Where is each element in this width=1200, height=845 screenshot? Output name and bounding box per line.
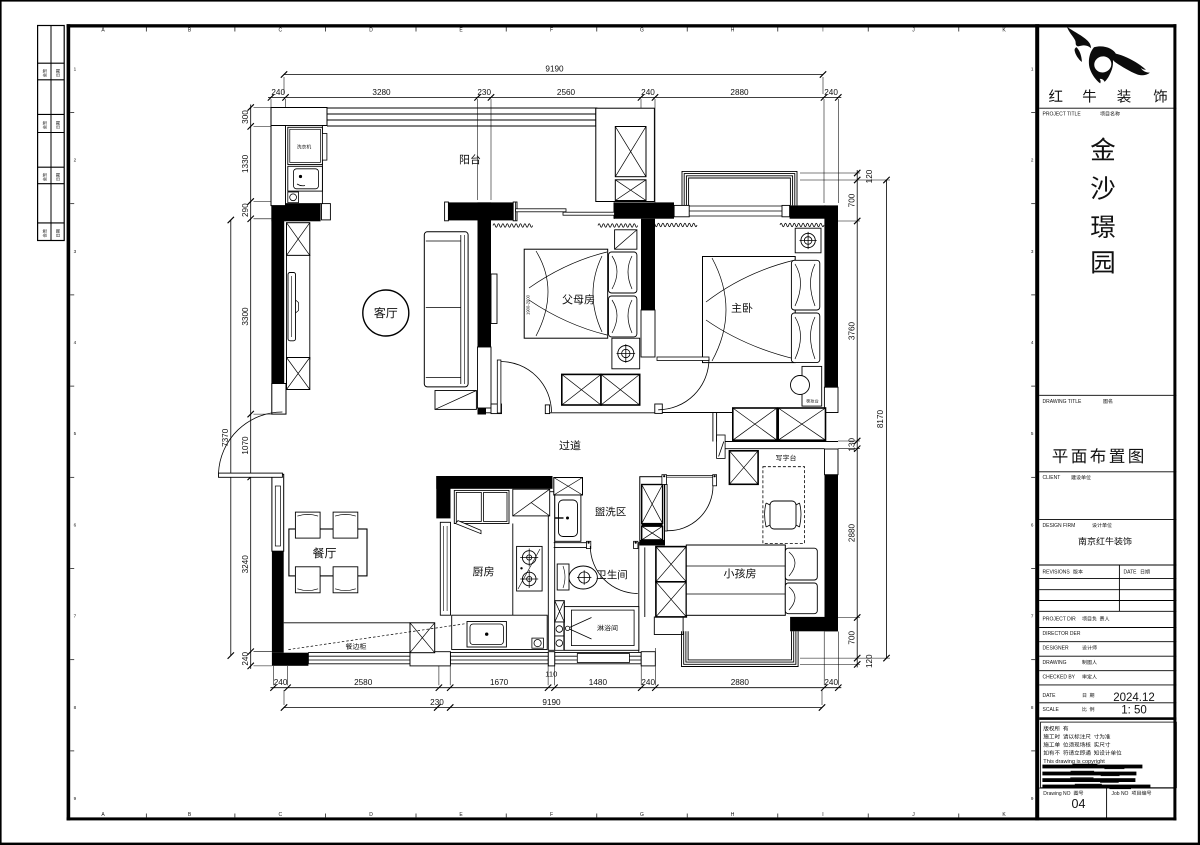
svg-text:SCALE: SCALE xyxy=(1043,707,1060,713)
svg-text:F: F xyxy=(550,812,553,818)
svg-text:3300: 3300 xyxy=(241,307,250,326)
svg-text:3: 3 xyxy=(1031,249,1034,254)
svg-text:240: 240 xyxy=(824,88,838,97)
svg-text:1900-2000: 1900-2000 xyxy=(526,294,531,315)
svg-text:110: 110 xyxy=(545,670,557,679)
svg-text:2880: 2880 xyxy=(730,88,749,97)
svg-text:DATE: DATE xyxy=(1124,570,1138,576)
svg-text:Drawing NO: Drawing NO xyxy=(1043,791,1070,797)
svg-text:DESIGNER: DESIGNER xyxy=(1043,646,1070,652)
svg-text:1480: 1480 xyxy=(589,678,608,687)
svg-text:7: 7 xyxy=(1031,614,1034,619)
svg-text:9: 9 xyxy=(1031,796,1034,801)
svg-text:DATE: DATE xyxy=(1043,693,1057,699)
svg-text:2560: 2560 xyxy=(557,88,576,97)
svg-text:6: 6 xyxy=(1031,522,1034,527)
svg-text:120: 120 xyxy=(865,169,874,183)
svg-text:120: 120 xyxy=(865,654,874,668)
svg-text:Job NO: Job NO xyxy=(1112,791,1129,797)
svg-text:700: 700 xyxy=(847,193,856,207)
svg-text:04: 04 xyxy=(1072,797,1086,811)
svg-text:240: 240 xyxy=(274,678,288,687)
svg-text:3240: 3240 xyxy=(241,555,250,574)
svg-text:2024.12: 2024.12 xyxy=(1113,692,1155,704)
svg-text:9190: 9190 xyxy=(542,698,561,707)
svg-text:G: G xyxy=(640,27,644,33)
svg-text:CLIENT: CLIENT xyxy=(1043,475,1061,481)
svg-text:C: C xyxy=(278,812,282,818)
svg-text:230: 230 xyxy=(430,698,444,707)
svg-text:1070: 1070 xyxy=(241,436,250,455)
svg-text:G: G xyxy=(640,812,644,818)
svg-text:PROJECT TITLE: PROJECT TITLE xyxy=(1043,112,1082,118)
svg-text:240: 240 xyxy=(241,652,250,666)
svg-text:9: 9 xyxy=(74,796,77,801)
svg-text:2: 2 xyxy=(74,158,77,163)
svg-text:2880: 2880 xyxy=(731,678,750,687)
svg-text:8170: 8170 xyxy=(876,409,885,428)
svg-text:5: 5 xyxy=(74,431,77,436)
svg-text:1: 50: 1: 50 xyxy=(1121,705,1147,717)
svg-text:DRAWING: DRAWING xyxy=(1043,660,1067,666)
svg-text:REVISIONS: REVISIONS xyxy=(1043,570,1071,576)
svg-text:4: 4 xyxy=(74,340,77,345)
svg-text:1: 1 xyxy=(1031,66,1034,71)
svg-text:I: I xyxy=(822,27,823,33)
svg-text:DRAWING TITLE: DRAWING TITLE xyxy=(1043,399,1083,405)
svg-text:240: 240 xyxy=(824,678,838,687)
svg-text:700: 700 xyxy=(847,631,856,645)
svg-text:6: 6 xyxy=(74,522,77,527)
svg-text:3280: 3280 xyxy=(372,88,391,97)
svg-text:300: 300 xyxy=(241,110,250,124)
svg-text:F: F xyxy=(550,27,553,33)
svg-text:7370: 7370 xyxy=(221,428,230,447)
svg-text:2: 2 xyxy=(1031,158,1034,163)
svg-text:DESIGN FIRM: DESIGN FIRM xyxy=(1043,523,1076,529)
svg-text:1670: 1670 xyxy=(490,678,509,687)
svg-text:4: 4 xyxy=(1031,340,1034,345)
svg-text:3760: 3760 xyxy=(847,321,856,340)
svg-text:H: H xyxy=(731,812,735,818)
svg-text:5: 5 xyxy=(1031,431,1034,436)
svg-text:CHECKED BY: CHECKED BY xyxy=(1043,675,1076,681)
svg-text:1: 1 xyxy=(74,66,77,71)
svg-text:H: H xyxy=(731,27,735,33)
svg-text:230: 230 xyxy=(477,88,491,97)
svg-text:3: 3 xyxy=(74,249,77,254)
svg-text:2880: 2880 xyxy=(847,523,856,542)
svg-text:240: 240 xyxy=(271,88,285,97)
svg-text:DIRECTOR DER: DIRECTOR DER xyxy=(1043,631,1081,637)
svg-text:130: 130 xyxy=(847,438,856,452)
svg-text:290: 290 xyxy=(241,203,250,217)
svg-text:2580: 2580 xyxy=(354,678,373,687)
svg-text:I: I xyxy=(822,812,823,818)
svg-text:C: C xyxy=(278,27,282,33)
svg-text:PROJECT DIR: PROJECT DIR xyxy=(1043,617,1077,623)
svg-text:D: D xyxy=(369,812,373,818)
svg-text:240: 240 xyxy=(641,88,655,97)
svg-text:8: 8 xyxy=(74,705,77,710)
svg-text:9190: 9190 xyxy=(545,65,564,74)
svg-text:240: 240 xyxy=(641,678,655,687)
svg-text:7: 7 xyxy=(74,614,77,619)
svg-text:8: 8 xyxy=(1031,705,1034,710)
svg-text:1330: 1330 xyxy=(241,154,250,173)
svg-text:D: D xyxy=(369,27,373,33)
